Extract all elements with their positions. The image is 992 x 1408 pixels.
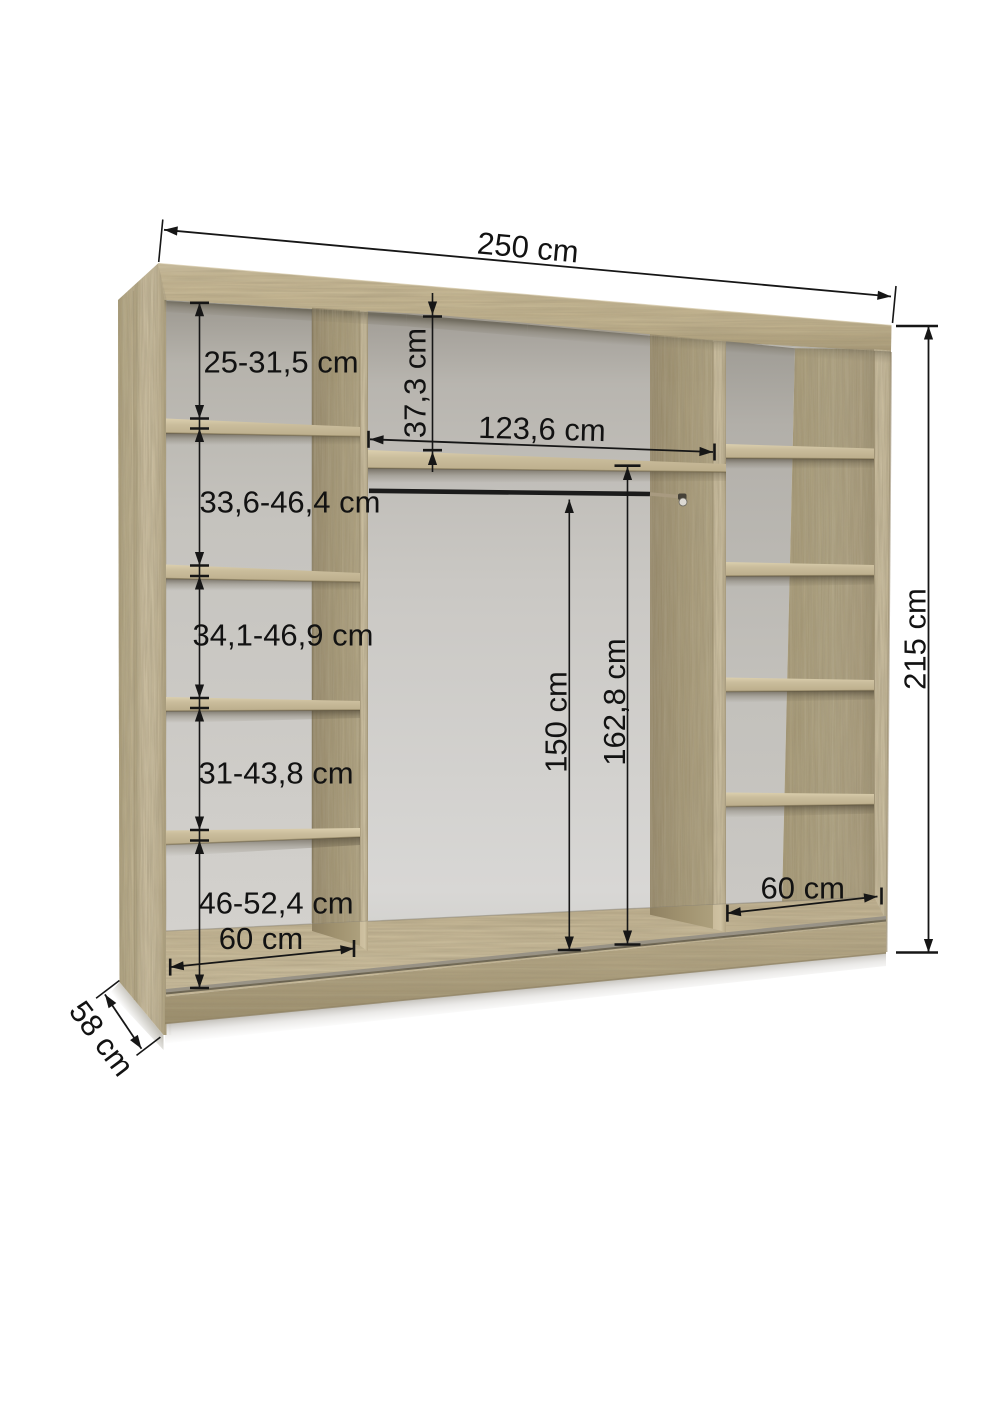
- svg-text:215 cm: 215 cm: [898, 588, 933, 690]
- svg-text:123,6 cm: 123,6 cm: [478, 410, 606, 448]
- svg-text:33,6-46,4 cm: 33,6-46,4 cm: [200, 485, 381, 520]
- svg-text:37,3 cm: 37,3 cm: [398, 328, 433, 438]
- svg-text:60 cm: 60 cm: [219, 921, 303, 956]
- svg-text:46-52,4 cm: 46-52,4 cm: [198, 886, 353, 921]
- svg-text:162,8 cm: 162,8 cm: [597, 638, 632, 766]
- svg-text:31-43,8 cm: 31-43,8 cm: [198, 756, 353, 791]
- svg-text:34,1-46,9 cm: 34,1-46,9 cm: [193, 618, 374, 653]
- svg-text:25-31,5 cm: 25-31,5 cm: [203, 345, 358, 380]
- svg-text:150 cm: 150 cm: [539, 671, 574, 773]
- svg-text:60 cm: 60 cm: [760, 871, 844, 906]
